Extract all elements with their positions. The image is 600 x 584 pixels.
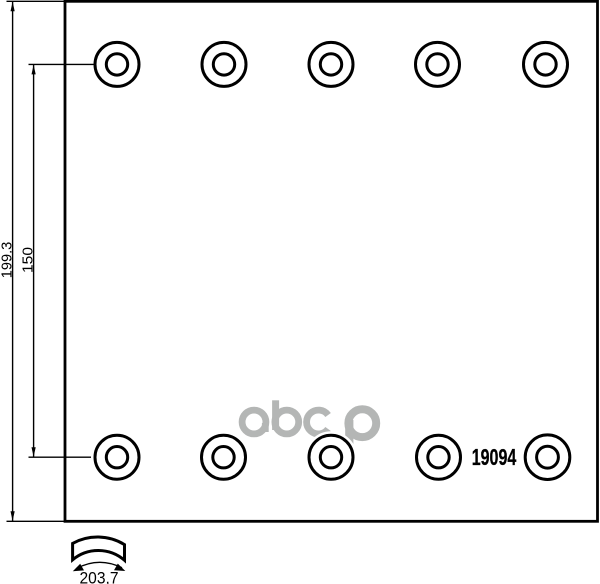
svg-text:19094: 19094: [472, 444, 517, 470]
svg-text:150: 150: [19, 247, 36, 273]
svg-text:199.3: 199.3: [0, 242, 15, 279]
svg-text:203,7: 203,7: [80, 569, 119, 584]
